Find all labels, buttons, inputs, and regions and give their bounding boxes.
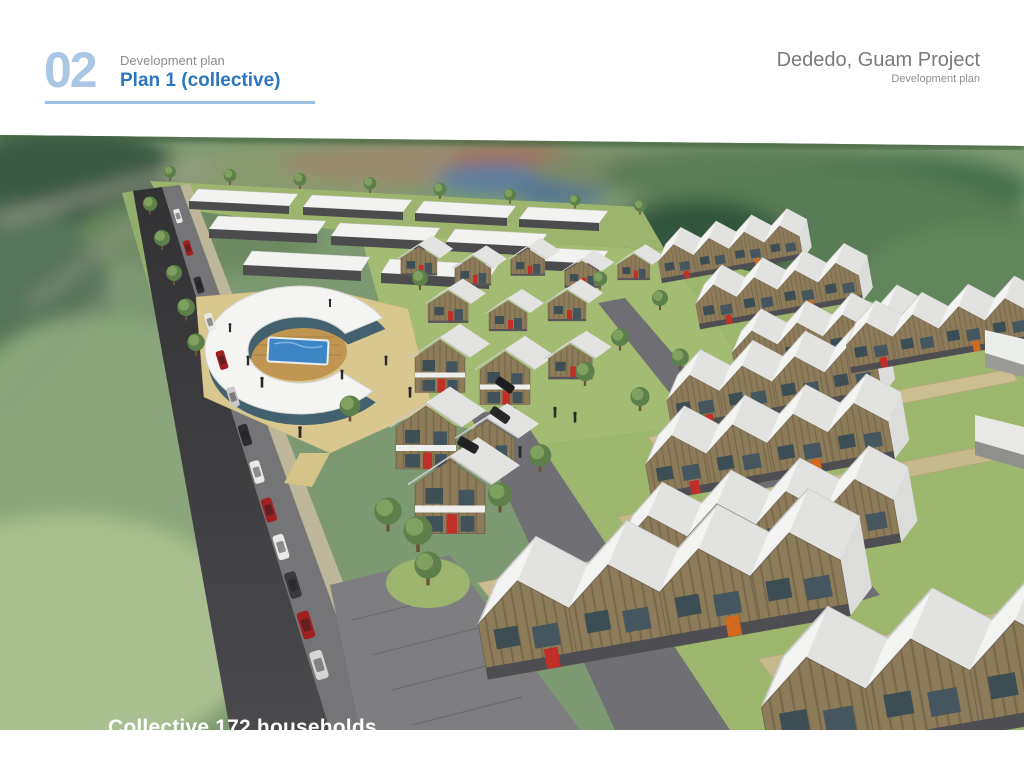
section-label: Development plan bbox=[120, 53, 281, 69]
section-heading: Development plan Plan 1 (collective) bbox=[120, 53, 281, 93]
project-subtitle: Development plan bbox=[777, 72, 980, 86]
households-caption: Collective 172 households bbox=[108, 716, 377, 730]
development-rendering: Collective 172 households bbox=[0, 115, 1024, 730]
header-underline bbox=[45, 101, 315, 104]
section-number: 02 bbox=[44, 44, 96, 96]
project-title: Dededo, Guam Project bbox=[777, 48, 980, 72]
slide: 02 Development plan Plan 1 (collective) … bbox=[0, 0, 1024, 768]
project-heading: Dededo, Guam Project Development plan bbox=[777, 48, 980, 86]
swimming-pool bbox=[267, 337, 328, 364]
rendering-svg bbox=[0, 115, 1024, 730]
section-title: Plan 1 (collective) bbox=[120, 69, 281, 93]
sky bbox=[0, 115, 1024, 139]
